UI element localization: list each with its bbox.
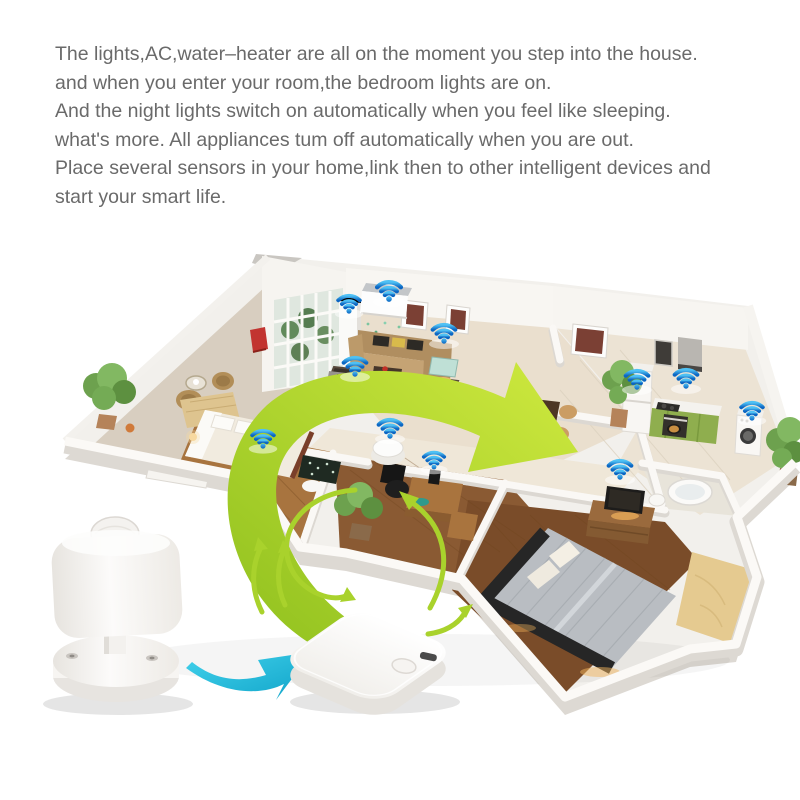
plant-pot (96, 414, 117, 430)
round-table (302, 480, 322, 492)
small-pot (126, 424, 135, 433)
smart-home-scene (0, 0, 800, 800)
product-marketing-image: The lights,AC,water–heater are all on th… (0, 0, 800, 800)
pir-motion-sensor-device (43, 517, 193, 715)
kitchen-wall-panel (655, 340, 672, 366)
toilet (649, 494, 665, 506)
green-arrow-hub-to-house (428, 604, 473, 634)
kitchen-cabinets (649, 398, 722, 444)
